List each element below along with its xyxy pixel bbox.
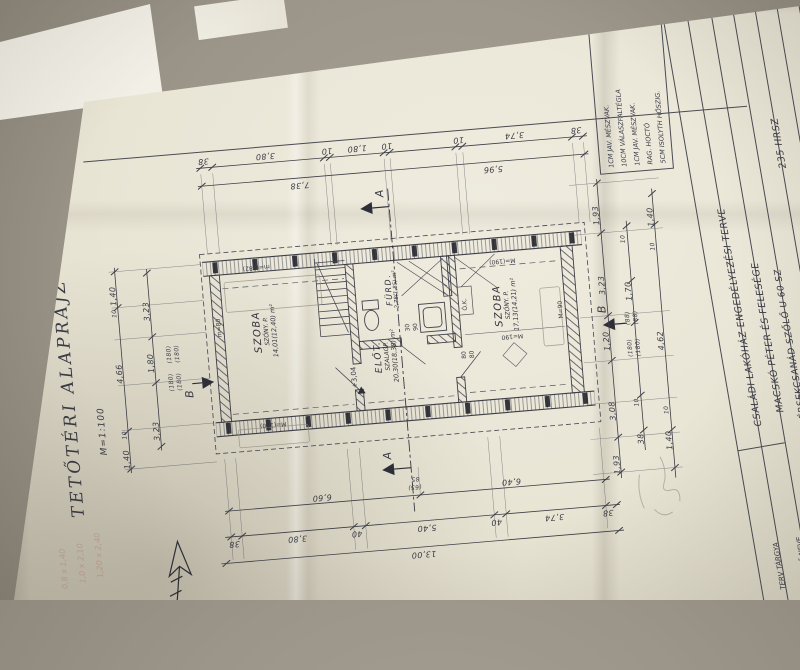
dim-label: 3,23 — [597, 275, 608, 295]
dim-label: (180) — [173, 344, 181, 363]
dim-label: (180) — [634, 338, 642, 357]
dim-label: 10 — [452, 135, 464, 145]
dim-label: 10 — [381, 141, 393, 151]
dim-label: 3,80 — [287, 534, 307, 545]
dim-label: 10 — [619, 234, 627, 243]
dim-label: 5,40 — [417, 523, 437, 534]
dim-label: 10 — [111, 309, 119, 318]
section-letter-b-right: B — [595, 305, 609, 314]
wall-label: 30 — [404, 324, 412, 332]
wall-label: 80 — [468, 350, 476, 358]
dim-label: 3,80 — [255, 151, 275, 162]
dim-label: 5,96 — [483, 164, 503, 175]
dim-label: 38 — [570, 125, 582, 135]
dim-label: 1,40 — [122, 450, 133, 470]
wall-label: m=80 — [215, 318, 224, 337]
dim-label: 7,38 — [290, 180, 310, 191]
ok-label: Ó.K. — [461, 298, 469, 311]
dim-label: 10 — [663, 405, 671, 414]
dim-label: 1,80 — [347, 143, 367, 154]
dim-label: 38 — [228, 539, 240, 549]
dim-label: 3,08 — [607, 401, 618, 421]
pencil-signature: N PÁL — [81, 613, 111, 628]
dim-label: 1,40 — [108, 286, 119, 306]
dim-label: 1,93 — [612, 455, 623, 475]
north-arrow-icon — [165, 541, 194, 621]
stamp-paper-fragment — [194, 0, 288, 40]
dim-label: (180) — [175, 372, 183, 391]
dim-label: 10 — [633, 398, 641, 407]
dim-label: (88) — [624, 311, 632, 325]
dim-label: (180) — [167, 373, 175, 392]
dim-label: (180) — [165, 345, 173, 364]
dim-label: 40 — [491, 517, 503, 527]
dim-label: 1,20 — [601, 331, 612, 351]
level-mark-label: +3,04 — [349, 366, 359, 388]
dim-label: 1,40 — [664, 430, 675, 450]
wall-label: 90 — [412, 323, 420, 331]
dim-label: 6,60 — [312, 492, 332, 503]
wall-label: M=90 — [557, 300, 565, 318]
dim-label: 1,80 — [146, 353, 157, 373]
dim-label: 4,66 — [114, 364, 125, 384]
dim-label: 38 — [197, 157, 209, 167]
dim-label: 1,70 — [623, 281, 634, 301]
dim-label: 3,23 — [151, 421, 162, 441]
dim-label: 40 — [351, 529, 363, 539]
dim-label: 1,40 — [645, 207, 656, 227]
dim-label: 3,23 — [141, 301, 152, 321]
wall-label: 80 — [461, 351, 469, 359]
corner-marks — [41, 614, 84, 628]
dim-label: 38 — [636, 433, 646, 445]
photo-of-floor-plan: { "drawing_title": { "text": "TETŐTÉRI A… — [0, 0, 800, 600]
dim-label: 4,62 — [656, 331, 667, 351]
dim-label: 6,40 — [501, 477, 521, 488]
section-letter-a-bottom: A — [381, 452, 395, 461]
dim-label: 10 — [649, 242, 657, 251]
dim-label: 3,74 — [544, 512, 564, 523]
dim-label: 10 — [121, 431, 129, 440]
dim-label: 85 — [411, 475, 420, 483]
room-label-szoba-left: SZOBA SZŐNY. P. 14,01(12,40) m² — [248, 284, 292, 379]
dim-label: 10 — [321, 146, 333, 156]
dim-label: 3,74 — [504, 130, 524, 141]
section-letter-b-left: B — [183, 390, 197, 399]
dim-label: (88) — [632, 310, 640, 324]
dim-label: 1,93 — [591, 206, 602, 226]
section-letter-a-top: A — [373, 189, 387, 198]
dim-label: (65) — [407, 483, 421, 491]
dim-label: 38 — [602, 508, 614, 518]
